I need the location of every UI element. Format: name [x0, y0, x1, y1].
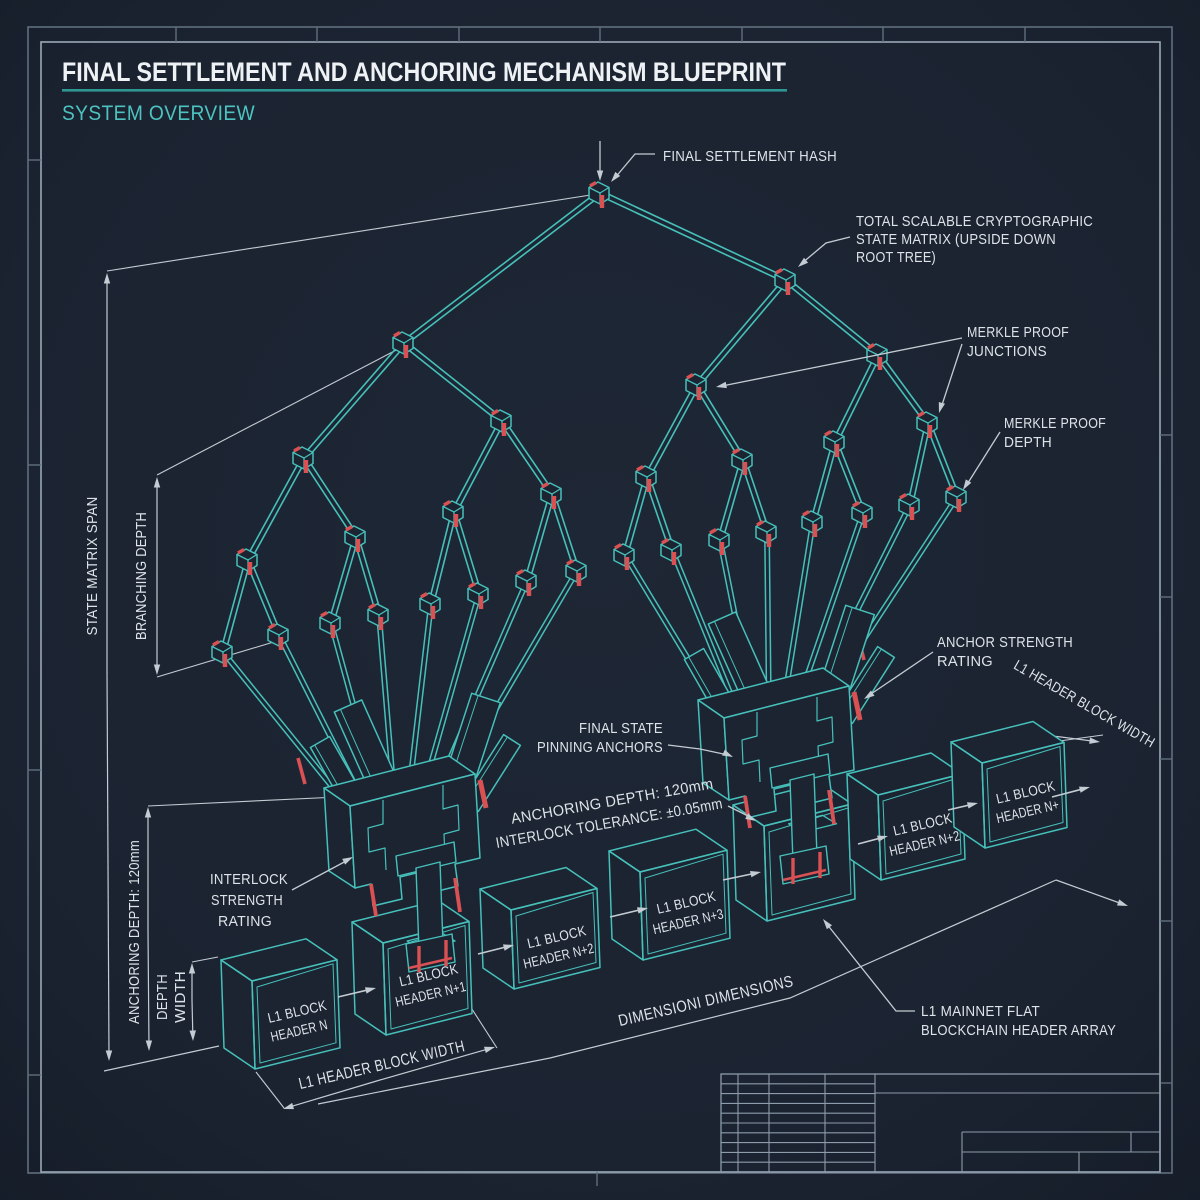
- svg-text:RATING: RATING: [937, 653, 993, 670]
- svg-text:STRENGTH: STRENGTH: [211, 892, 283, 909]
- svg-text:JUNCTIONS: JUNCTIONS: [967, 343, 1047, 360]
- svg-text:L1 MAINNET FLAT: L1 MAINNET FLAT: [921, 1003, 1040, 1020]
- svg-text:BLOCKCHAIN HEADER ARRAY: BLOCKCHAIN HEADER ARRAY: [921, 1022, 1116, 1039]
- svg-text:MERKLE PROOF: MERKLE PROOF: [967, 324, 1069, 341]
- svg-text:BRANCHING DEPTH: BRANCHING DEPTH: [133, 512, 150, 640]
- svg-text:DEPTH: DEPTH: [155, 974, 171, 1020]
- svg-text:WIDTH: WIDTH: [173, 971, 189, 1023]
- svg-text:STATE MATRIX (UPSIDE DOWN: STATE MATRIX (UPSIDE DOWN: [856, 231, 1056, 248]
- svg-text:STATE MATRIX SPAN: STATE MATRIX SPAN: [84, 497, 101, 636]
- svg-text:MERKLE PROOF: MERKLE PROOF: [1004, 415, 1106, 432]
- svg-text:ANCHOR STRENGTH: ANCHOR STRENGTH: [937, 634, 1073, 651]
- svg-text:ANCHORING DEPTH: 120mm: ANCHORING DEPTH: 120mm: [127, 840, 143, 1024]
- svg-text:INTERLOCK: INTERLOCK: [210, 871, 288, 888]
- svg-text:FINAL SETTLEMENT AND ANCHORING: FINAL SETTLEMENT AND ANCHORING MECHANISM…: [62, 57, 786, 87]
- svg-text:ROOT TREE): ROOT TREE): [856, 249, 936, 266]
- svg-text:DEPTH: DEPTH: [1004, 434, 1052, 451]
- svg-text:SYSTEM OVERVIEW: SYSTEM OVERVIEW: [62, 101, 255, 125]
- svg-text:TOTAL SCALABLE CRYPTOGRAPHIC: TOTAL SCALABLE CRYPTOGRAPHIC: [856, 213, 1093, 230]
- svg-text:FINAL STATE: FINAL STATE: [579, 720, 663, 737]
- svg-text:PINNING ANCHORS: PINNING ANCHORS: [537, 739, 663, 756]
- svg-text:FINAL SETTLEMENT HASH: FINAL SETTLEMENT HASH: [663, 148, 837, 165]
- svg-text:RATING: RATING: [218, 913, 272, 930]
